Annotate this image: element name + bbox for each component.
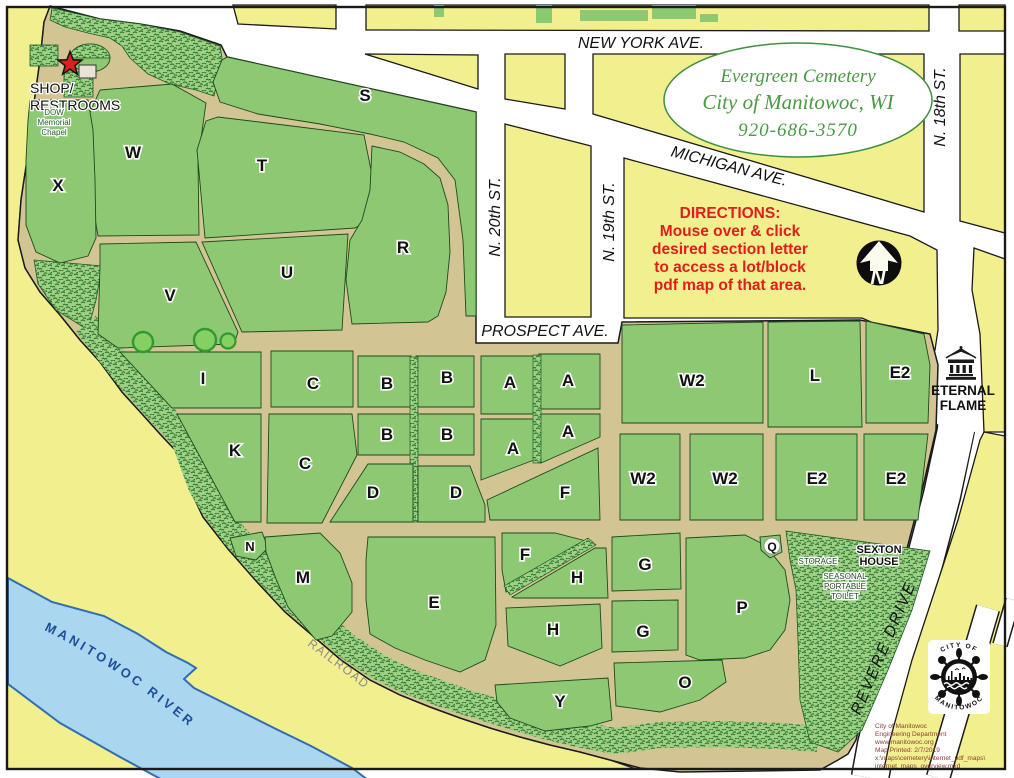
svg-text:W2: W2	[712, 469, 738, 488]
svg-text:City of Manitowoc, WI: City of Manitowoc, WI	[702, 90, 894, 114]
svg-text:ETERNAL: ETERNAL	[931, 383, 995, 398]
svg-text:D: D	[450, 483, 462, 502]
svg-text:L: L	[810, 366, 820, 385]
svg-text:H: H	[571, 568, 583, 587]
svg-text:U: U	[281, 263, 293, 282]
svg-text:HOUSE: HOUSE	[859, 556, 898, 568]
svg-text:to access a lot/block: to access a lot/block	[654, 259, 806, 276]
svg-text:R: R	[397, 238, 409, 257]
svg-text:G: G	[636, 622, 649, 641]
svg-text:Engineering Department: Engineering Department	[875, 731, 947, 738]
svg-text:Y: Y	[554, 692, 566, 711]
svg-text:TOILET: TOILET	[831, 592, 859, 601]
svg-text:C: C	[299, 454, 311, 473]
svg-text:H: H	[547, 620, 559, 639]
svg-text:x:\maps\cemetery\internet_pdf_: x:\maps\cemetery\internet_pdf_maps\	[875, 755, 985, 762]
svg-text:N: N	[870, 266, 886, 289]
svg-text:N. 20th ST.: N. 20th ST.	[487, 177, 504, 256]
svg-text:PROSPECT AVE.: PROSPECT AVE.	[481, 323, 608, 340]
svg-text:S: S	[359, 86, 370, 105]
svg-text:G: G	[638, 555, 651, 574]
svg-text:FLAME: FLAME	[940, 398, 987, 413]
svg-text:M: M	[296, 568, 310, 587]
svg-text:O: O	[678, 673, 691, 692]
svg-text:B: B	[441, 368, 453, 387]
svg-text:F: F	[560, 483, 570, 502]
svg-text:SEXTON: SEXTON	[856, 544, 901, 556]
svg-text:T: T	[257, 156, 268, 175]
svg-text:W2: W2	[679, 371, 705, 390]
svg-text:E: E	[428, 593, 439, 612]
svg-text:N. 18th ST.: N. 18th ST.	[932, 67, 949, 146]
svg-text:K: K	[229, 441, 242, 460]
svg-text:A: A	[504, 373, 516, 392]
svg-text:Mouse over & click: Mouse over & click	[660, 223, 801, 240]
svg-text:Chapel: Chapel	[41, 128, 67, 137]
svg-text:NEW YORK AVE.: NEW YORK AVE.	[578, 35, 704, 52]
svg-text:X: X	[52, 176, 64, 195]
svg-text:D: D	[367, 483, 379, 502]
svg-text:DIRECTIONS:: DIRECTIONS:	[680, 205, 781, 222]
svg-text:desired section letter: desired section letter	[652, 241, 808, 258]
svg-text:PORTABLE: PORTABLE	[824, 582, 866, 591]
svg-text:SHOP/: SHOP/	[30, 80, 74, 96]
svg-text:www.manitowoc.org: www.manitowoc.org	[874, 739, 934, 746]
svg-text:E2: E2	[807, 469, 828, 488]
svg-text:N: N	[245, 539, 254, 554]
svg-text:A: A	[507, 439, 519, 458]
svg-text:I: I	[201, 369, 206, 388]
svg-text:Q: Q	[767, 540, 776, 554]
svg-text:B: B	[441, 425, 453, 444]
svg-text:A: A	[562, 422, 574, 441]
svg-text:B: B	[381, 374, 393, 393]
svg-text:Map Printed: 2/7/2019: Map Printed: 2/7/2019	[875, 747, 940, 754]
svg-text:920-686-3570: 920-686-3570	[738, 120, 858, 141]
svg-text:B: B	[381, 425, 393, 444]
svg-text:C: C	[307, 374, 319, 393]
svg-text:Memorial: Memorial	[38, 118, 71, 127]
svg-text:F: F	[520, 545, 530, 564]
svg-text:W: W	[125, 143, 142, 162]
svg-text:V: V	[164, 286, 176, 305]
svg-text:E2: E2	[890, 363, 911, 382]
svg-text:STORAGE: STORAGE	[799, 557, 838, 566]
svg-text:pdf map of that area.: pdf map of that area.	[654, 277, 806, 294]
svg-text:E2: E2	[886, 469, 907, 488]
svg-text:City of Manitowoc: City of Manitowoc	[875, 723, 928, 730]
svg-text:W2: W2	[630, 469, 656, 488]
svg-text:P: P	[736, 598, 747, 617]
svg-text:A: A	[562, 371, 574, 390]
svg-text:Evergreen Cemetery: Evergreen Cemetery	[719, 66, 876, 87]
svg-text:DOW: DOW	[44, 108, 64, 117]
svg-text:SEASONAL: SEASONAL	[823, 572, 867, 581]
svg-text:N. 19th ST.: N. 19th ST.	[601, 182, 618, 261]
